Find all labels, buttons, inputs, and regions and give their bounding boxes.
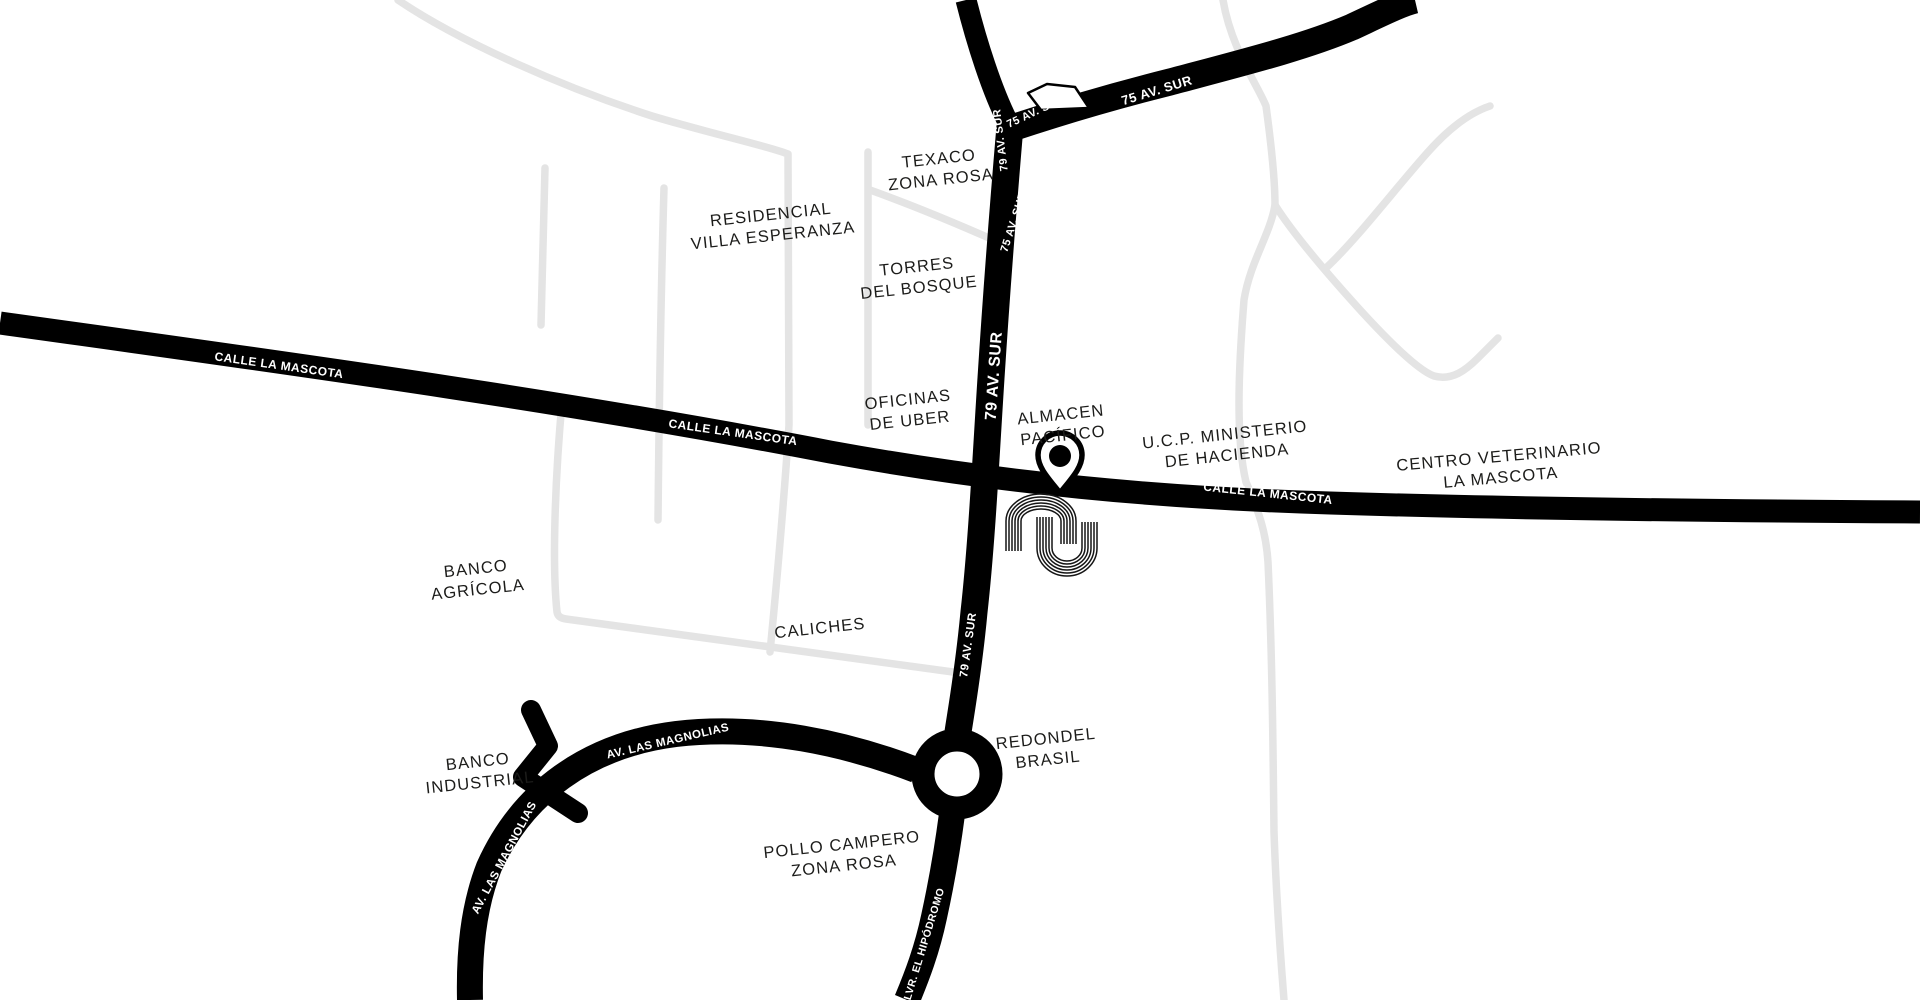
label-ucp-hacienda: U.C.P. MINISTERIO DE HACIENDA xyxy=(1141,416,1311,475)
road-label-75-south: 75 AV. SUR xyxy=(998,190,1031,254)
road-label-magnolias-1: AV. LAS MAGNOLIAS xyxy=(605,721,731,764)
road-label-75-junction: 75 AV. SUR xyxy=(1005,92,1068,131)
road-label-mascota-1: CALLE LA MASCOTA xyxy=(214,349,345,382)
label-caliches: CALICHES xyxy=(773,614,866,645)
road-label-mascota-2: CALLE LA MASCOTA xyxy=(668,416,799,449)
label-banco-agricola: BANCO AGRÍCOLA xyxy=(428,554,526,606)
road-label-79-mid: 79 AV. SUR xyxy=(982,331,1009,421)
road-label-magnolias-2: AV. LAS MAGNOLIAS xyxy=(469,799,541,917)
road-label-mascota-3: CALLE LA MASCOTA xyxy=(1203,480,1334,509)
map-canvas: TEXACO ZONA ROSARESIDENCIAL VILLA ESPERA… xyxy=(0,0,1920,1000)
label-layer: TEXACO ZONA ROSARESIDENCIAL VILLA ESPERA… xyxy=(0,0,1920,1000)
label-residencial: RESIDENCIAL VILLA ESPERANZA xyxy=(688,196,857,255)
label-centro-veterinario: CENTRO VETERINARIO LA MASCOTA xyxy=(1396,438,1605,498)
label-banco-industrial: BANCO INDUSTRIAL xyxy=(423,746,536,799)
label-pollo-campero: POLLO CAMPERO ZONA ROSA xyxy=(763,827,924,885)
road-label-hipodromo: BLVR. EL HIPÓDROMO xyxy=(899,886,948,1000)
label-oficinas-uber: OFICINAS DE UBER xyxy=(864,385,955,436)
label-texaco: TEXACO ZONA ROSA xyxy=(885,143,995,196)
label-torres-del-bosque: TORRES DEL BOSQUE xyxy=(857,251,978,305)
road-label-75-east: 75 AV. SUR xyxy=(1120,72,1195,109)
label-redondel-brasil: REDONDEL BRASIL xyxy=(995,724,1099,776)
label-almacen-pacifico: ALMACEN PACÍFICO xyxy=(1016,400,1107,451)
road-label-79-low: 79 AV. SUR xyxy=(957,612,981,679)
